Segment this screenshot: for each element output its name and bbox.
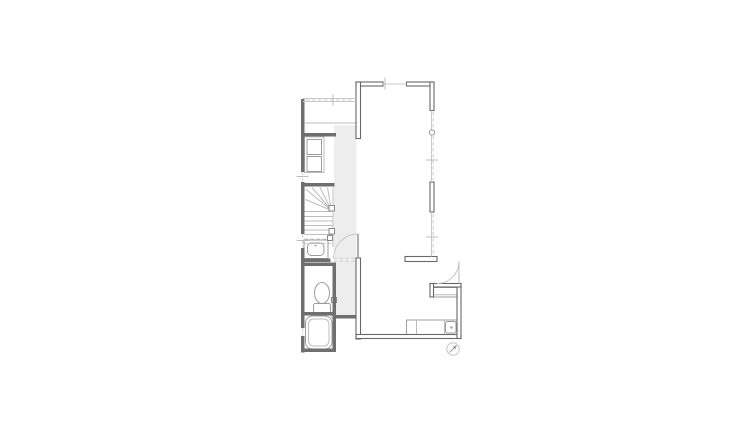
entry-swing-arc <box>437 262 459 284</box>
toilet-bowl <box>315 283 330 304</box>
vestibule-stub-wall <box>430 284 434 298</box>
entry-door <box>437 262 459 284</box>
vestibule-north-wall <box>430 284 461 288</box>
fixture-box <box>328 236 333 241</box>
room-south-wall <box>301 133 336 137</box>
hall-floor-shading <box>334 126 357 316</box>
closet-shelf-upper <box>307 140 322 155</box>
left-wall <box>301 133 305 172</box>
bath-south-wall <box>301 349 336 353</box>
vanity-south-wall <box>303 259 331 263</box>
entry-partial-wall <box>405 257 437 262</box>
east-wall-mid <box>430 182 434 212</box>
vanity-faucet <box>315 245 317 247</box>
left-wall <box>301 182 305 234</box>
floor-plan-page <box>0 0 750 433</box>
floor-plan-canvas <box>0 0 750 433</box>
winder-line <box>306 200 332 211</box>
shoe-cabinet-outline <box>432 288 458 298</box>
kitchen <box>407 320 458 335</box>
windows <box>303 84 435 336</box>
winder-line <box>306 189 332 211</box>
east-wall-upper <box>430 82 434 111</box>
west-wall-lower <box>356 258 361 339</box>
hall-floor <box>334 126 357 316</box>
toilet-tank <box>314 304 331 314</box>
left-wall <box>301 99 305 136</box>
hall-south-wall <box>334 315 359 319</box>
vent-symbol <box>429 130 434 135</box>
newel-post <box>329 229 335 235</box>
west-wall-upper <box>356 82 361 139</box>
bathtub <box>306 314 335 350</box>
sink-drain <box>450 326 452 328</box>
shoe-cabinet <box>432 288 458 298</box>
tub-inner <box>309 319 330 346</box>
exterior-walls <box>356 82 461 339</box>
toilet-north-wall <box>303 263 336 267</box>
vestibule-east-wall <box>457 284 461 339</box>
newel-post <box>329 206 335 212</box>
north-arrow <box>447 343 459 355</box>
kitchen-counter <box>407 320 458 335</box>
bath-north-wall <box>303 312 336 316</box>
south-wall <box>356 335 461 339</box>
closet-shelf-lower <box>307 157 322 172</box>
stair-north-wall <box>303 183 335 187</box>
toilet-east-wall <box>333 263 337 316</box>
